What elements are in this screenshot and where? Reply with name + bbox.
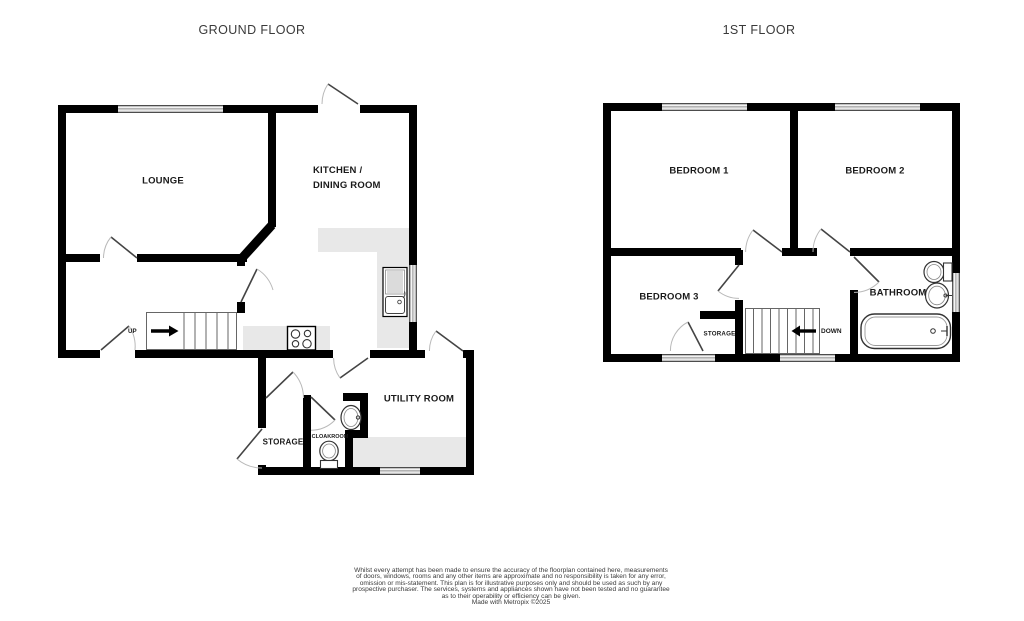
room-label-bathroom: BATHROOM: [870, 288, 927, 299]
wash-basin-icon: [341, 406, 361, 430]
kitchen-sink-icon: [383, 268, 407, 317]
floorplan-drawing: [0, 0, 1024, 621]
stairs-up-label: UP: [128, 328, 137, 335]
window: [952, 273, 960, 312]
toilet-icon: [320, 441, 338, 468]
toilet-icon: [924, 262, 952, 283]
door: [718, 265, 739, 298]
window: [380, 467, 420, 475]
door: [104, 237, 138, 258]
bathtub-icon: [861, 314, 951, 349]
window: [662, 354, 715, 362]
room-label-bedroom3: BEDROOM 3: [639, 292, 698, 303]
ground-floor-plan: [58, 84, 474, 475]
first-floor-plan: [603, 103, 960, 362]
window: [118, 105, 223, 113]
window: [835, 103, 920, 111]
door: [334, 358, 368, 378]
door: [322, 84, 358, 104]
room-label-lounge: LOUNGE: [142, 176, 184, 187]
door: [670, 322, 703, 351]
room-label-bedroom1: BEDROOM 1: [669, 166, 728, 177]
floorplan-page: GROUND FLOOR 1ST FLOOR: [0, 0, 1024, 621]
door: [266, 372, 304, 398]
hob-icon: [288, 327, 316, 351]
window: [409, 265, 417, 322]
door: [237, 429, 262, 468]
window: [780, 354, 835, 362]
room-label-storage-ground: STORAGE: [263, 438, 304, 447]
window: [662, 103, 747, 111]
staircase-up-icon: [147, 313, 237, 350]
door: [241, 269, 273, 302]
room-label-utility: UTILITY ROOM: [384, 394, 454, 405]
room-label-storage-first: STORAGE: [704, 330, 736, 337]
door: [429, 331, 463, 351]
staircase-down-icon: [746, 309, 820, 354]
kitchen-label-line2: DINING ROOM: [313, 179, 381, 194]
kitchen-label-line1: KITCHEN /: [313, 164, 381, 179]
room-label-kitchen-dining: KITCHEN / DINING ROOM: [313, 164, 381, 193]
disclaimer: Whilst every attempt has been made to en…: [352, 568, 669, 606]
wash-basin-icon: [926, 283, 953, 308]
room-label-bedroom2: BEDROOM 2: [845, 166, 904, 177]
door: [311, 397, 335, 430]
door: [813, 229, 850, 252]
room-label-cloakroom: CLOAKROOM: [312, 434, 349, 440]
stairs-down-label: DOWN: [821, 328, 842, 335]
made-with-credit: Made with Metropix ©2025: [352, 600, 669, 606]
door: [746, 230, 782, 252]
